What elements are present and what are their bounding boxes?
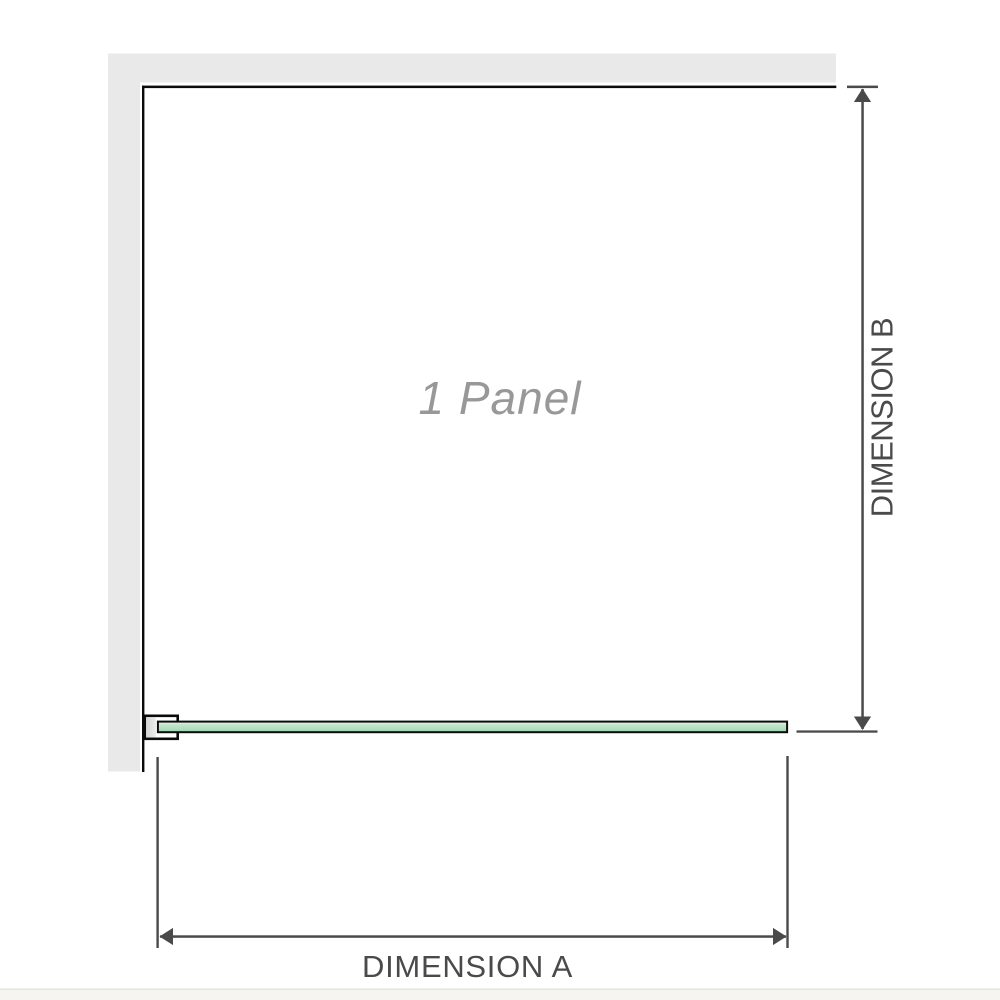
svg-text:1 Panel: 1 Panel [418, 372, 582, 424]
svg-text:DIMENSION B: DIMENSION B [865, 318, 900, 517]
svg-text:DIMENSION A: DIMENSION A [362, 949, 573, 984]
